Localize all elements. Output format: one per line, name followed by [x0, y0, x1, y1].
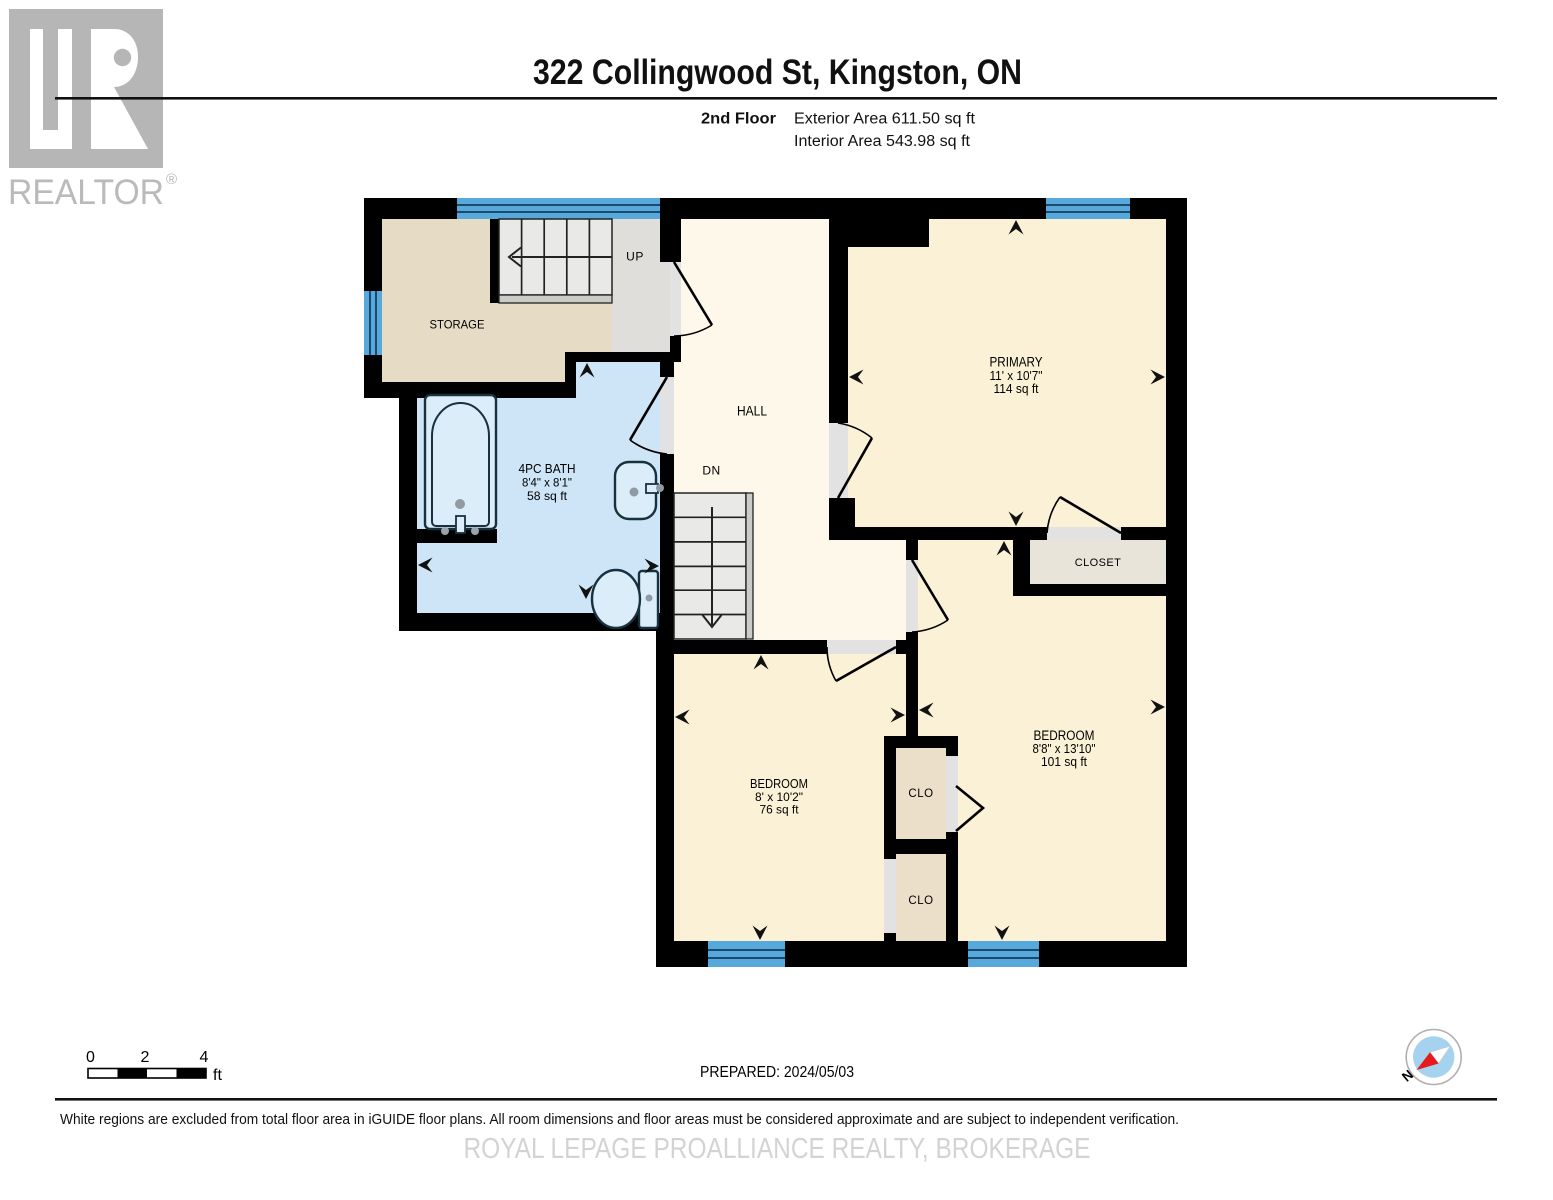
svg-text:114 sq ft: 114 sq ft [994, 381, 1039, 396]
svg-text:322 Collingwood St, Kingston,: 322 Collingwood St, Kingston, ON [533, 53, 1022, 92]
svg-text:DN: DN [702, 464, 720, 478]
svg-text:BEDROOM: BEDROOM [750, 777, 808, 791]
svg-text:PREPARED: 2024/05/03: PREPARED: 2024/05/03 [700, 1064, 854, 1081]
svg-text:2nd Floor: 2nd Floor [701, 111, 776, 128]
svg-text:White regions are excluded fro: White regions are excluded from total fl… [60, 1111, 1179, 1128]
svg-text:0: 0 [86, 1049, 95, 1066]
svg-text:CLO: CLO [908, 895, 933, 907]
svg-text:ft: ft [213, 1067, 222, 1084]
svg-text:STORAGE: STORAGE [430, 318, 485, 332]
svg-text:4: 4 [200, 1049, 209, 1066]
svg-text:®: ® [166, 171, 177, 188]
svg-text:Exterior Area 611.50 sq ft: Exterior Area 611.50 sq ft [794, 111, 976, 128]
svg-text:2: 2 [141, 1049, 150, 1066]
svg-text:8'4" x 8'1": 8'4" x 8'1" [522, 476, 572, 490]
svg-text:UP: UP [626, 250, 644, 264]
svg-text:101 sq ft: 101 sq ft [1041, 754, 1087, 769]
svg-text:CLOSET: CLOSET [1075, 557, 1121, 569]
svg-text:CLO: CLO [908, 788, 933, 800]
svg-text:Interior Area 543.98 sq ft: Interior Area 543.98 sq ft [794, 133, 971, 150]
svg-text:HALL: HALL [737, 404, 767, 419]
svg-text:4PC BATH: 4PC BATH [519, 462, 576, 476]
svg-text:REALTOR: REALTOR [8, 173, 164, 212]
svg-text:76 sq ft: 76 sq ft [760, 803, 800, 817]
svg-text:58 sq ft: 58 sq ft [527, 489, 568, 503]
svg-text:ROYAL LEPAGE PROALLIANCE REALT: ROYAL LEPAGE PROALLIANCE REALTY, BROKERA… [464, 1133, 1091, 1165]
